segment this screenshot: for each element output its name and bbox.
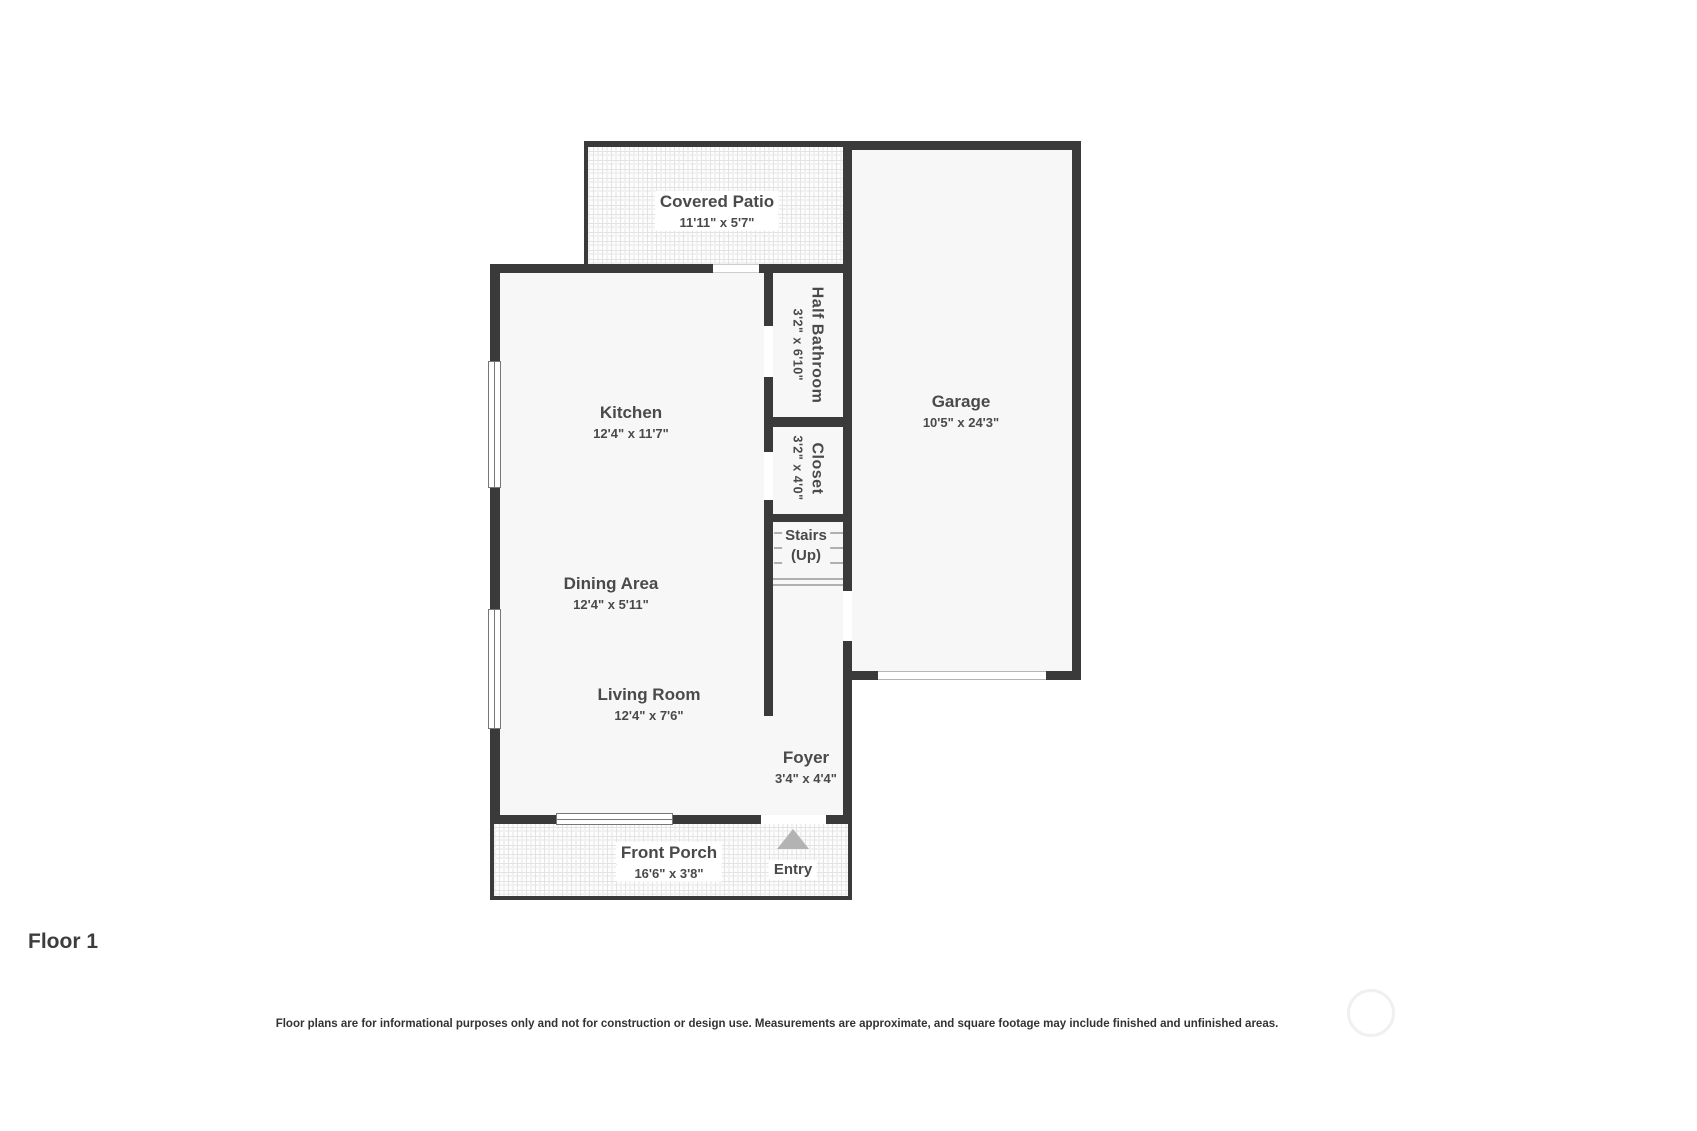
label-dining-area: Dining Area 12'4" x 5'11" [564,573,659,613]
label-living-room: Living Room 12'4" x 7'6" [598,684,701,724]
patio-door-marker [713,264,759,273]
wall-left-middle [490,488,500,609]
wall-closet-stairs-divider [764,514,852,522]
room-dimensions: 3'4" x 4'4" [775,770,837,788]
wall-garage-left-upper [843,141,852,591]
wall-patio-top [584,141,850,147]
logo-circle [1347,989,1395,1037]
stairs-direction: (Up) [782,546,830,566]
floor-plan-page: Covered Patio 11'11" x 5'7" Kitchen 12'4… [0,0,1697,1131]
floor-label: Floor 1 [28,930,98,954]
room-name: Foyer [775,747,837,770]
window-marker-front [556,813,673,825]
label-stairs: Stairs (Up) [782,526,830,567]
room-dimensions: 12'4" x 7'6" [598,707,701,725]
room-name: Stairs [782,526,830,546]
bathroom-door-opening [764,326,773,377]
entry-arrow-icon [777,829,809,849]
label-closet: Closet 3'2" x 4'0" [791,435,826,500]
label-front-porch: Front Porch 16'6" x 3'8" [616,842,722,882]
wall-left-upper [490,264,500,361]
room-name: Covered Patio [655,191,779,214]
room-name: Living Room [598,684,701,707]
room-name: Garage [923,391,999,414]
wall-porch-bottom [490,896,852,900]
label-entry: Entry [769,860,817,880]
room-name: Front Porch [616,842,722,865]
closet-door-opening [764,452,773,500]
room-name: Entry [769,860,817,880]
wall-bath-closet-divider [764,417,852,427]
label-foyer: Foyer 3'4" x 4'4" [775,747,837,787]
wall-main-bottom-mid [673,815,761,824]
room-name: Closet [808,435,826,500]
garage-entry-door-opening [843,591,852,641]
floor-plan: Covered Patio 11'11" x 5'7" Kitchen 12'4… [0,0,1697,1131]
wall-garage-left-lower [843,641,852,824]
room-name: Dining Area [564,573,659,596]
room-dimensions: 3'2" x 4'0" [791,435,805,500]
room-dimensions: 11'11" x 5'7" [655,214,779,232]
label-covered-patio: Covered Patio 11'11" x 5'7" [655,191,779,231]
wall-patio-left [584,141,588,269]
wall-porch-left [490,824,494,900]
room-name: Half Bathroom [808,287,826,404]
window-marker-kitchen [488,361,501,488]
wall-garage-top [843,141,1081,150]
label-half-bathroom: Half Bathroom 3'2" x 6'10" [791,287,826,404]
wall-column-middle [764,377,773,452]
wall-porch-right [848,824,852,900]
room-dimensions: 10'5" x 24'3" [923,414,999,432]
label-kitchen: Kitchen 12'4" x 11'7" [593,402,669,442]
room-dimensions: 16'6" x 3'8" [616,865,722,883]
disclaimer-text: Floor plans are for informational purpos… [276,1018,1279,1030]
wall-main-top-right [759,264,850,273]
label-garage: Garage 10'5" x 24'3" [923,391,999,431]
wall-column-upper [764,273,773,326]
room-dimensions: 12'4" x 11'7" [593,425,669,443]
window-marker-living [488,609,501,729]
wall-column-lower [764,500,773,716]
garage-door-marker [878,671,1046,680]
wall-main-top-left [490,264,713,273]
room-dimensions: 3'2" x 6'10" [791,287,805,404]
wall-left-lower [490,729,500,824]
wall-garage-right [1072,141,1081,680]
room-dimensions: 12'4" x 5'11" [564,596,659,614]
room-name: Kitchen [593,402,669,425]
front-entry-door-opening [761,815,826,824]
